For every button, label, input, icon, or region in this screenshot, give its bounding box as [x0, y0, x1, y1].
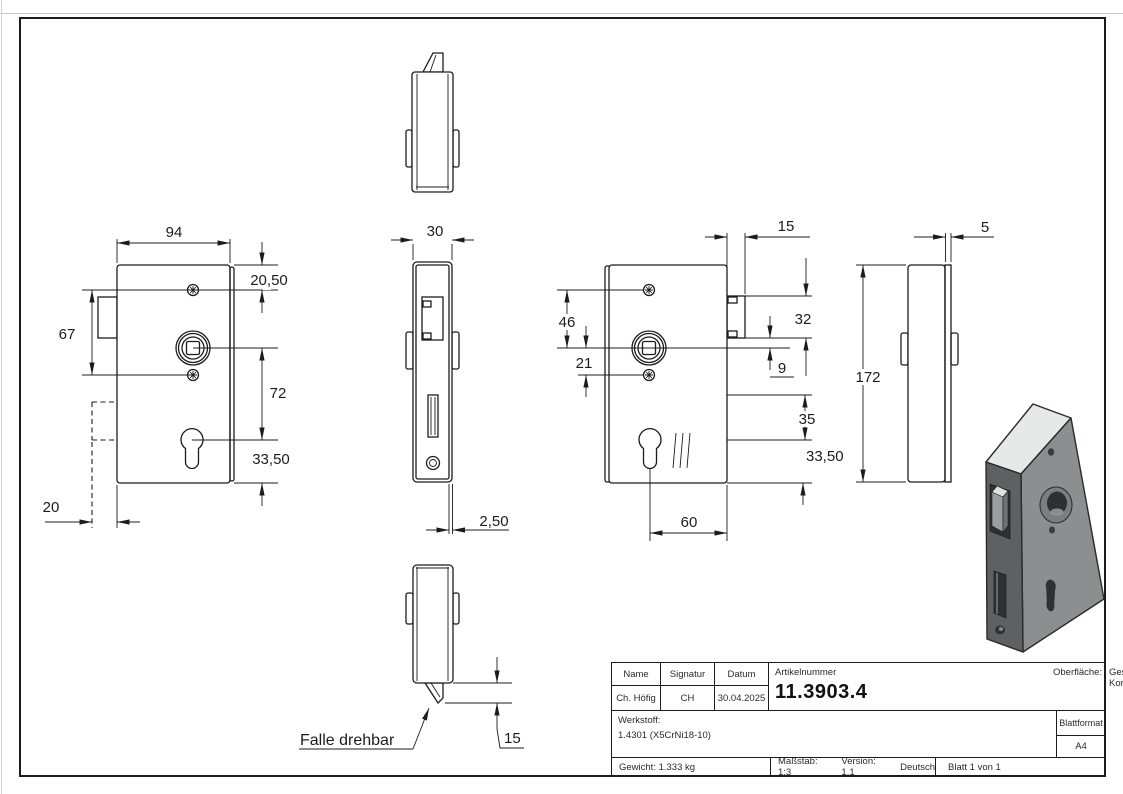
- dim-30-group: 30: [391, 223, 474, 260]
- dim-height-35: 35: [799, 411, 816, 428]
- dim-height-32: 32: [795, 311, 812, 328]
- tb-label-blattformat: Blattformat: [1057, 711, 1105, 736]
- tb-label-werkstoff: Werkstoff:: [618, 715, 660, 726]
- tb-label-artikelnummer: Artikelnummer: [775, 667, 836, 678]
- tb-value-blattformat: A4: [1057, 736, 1105, 758]
- dim-thickness-5: 5: [981, 219, 989, 236]
- dim-latch-15-top: 15: [778, 218, 795, 235]
- dim-thickness-2-50: 2,50: [479, 513, 508, 530]
- tb-gewicht: Gewicht: 1.333 kg: [612, 758, 771, 776]
- tb-artikel-cell: Artikelnummer 11.3903.4 Oberfläche: Gesc…: [769, 663, 1105, 711]
- dim-height-46: 46: [559, 314, 576, 331]
- dim-width-94: 94: [166, 224, 183, 241]
- note-falle-drehbar: Falle drehbar: [300, 732, 395, 749]
- profile-view-bottom: Falle drehbar 15: [299, 565, 524, 749]
- tb-label-oberflaeche: Oberfläche:: [1053, 667, 1102, 678]
- dim-height-21: 21: [576, 355, 593, 372]
- tb-header-datum: Datum: [715, 663, 769, 686]
- screw-bottom-right: [644, 370, 655, 381]
- front-view-right: 15 46 21 32 9 35: [557, 218, 844, 541]
- dim-height-172: 172: [855, 369, 880, 386]
- tb-value-artikelnummer: 11.3903.4: [775, 681, 867, 704]
- tb-werkstoff-cell: Werkstoff: 1.4301 (X5CrNi18-10): [612, 711, 1057, 758]
- 3d-screw-hole-bottom: [1049, 527, 1055, 534]
- front-view-left: 94 20,50 67 72 33,50 20: [43, 224, 290, 528]
- dim-width-60: 60: [681, 514, 698, 531]
- dim-width-20: 20: [43, 499, 60, 516]
- tb-value-name: Ch. Höfig: [612, 686, 661, 711]
- tb-blatt: Blatt 1 von 1: [936, 758, 1105, 776]
- lock-case-left-view: [117, 265, 230, 483]
- tb-value-werkstoff: 1.4301 (X5CrNi18-10): [618, 730, 711, 741]
- lock-case-right-view: [609, 265, 727, 483]
- tb-value-signatur: CH: [661, 686, 715, 711]
- 3d-bolt-slot: [994, 571, 1006, 618]
- latch-tip-bottom: [425, 683, 443, 703]
- title-block: Name Signatur Datum Ch. Höfig CH 30.04.2…: [611, 662, 1105, 776]
- tb-value-oberflaeche: Geschliffen Korn 240: [1109, 667, 1123, 689]
- latch-right-view: [727, 296, 745, 338]
- 3d-screw-hole-top: [1048, 448, 1054, 456]
- bolt-hidden-lines: [92, 402, 117, 440]
- dim-width-30: 30: [427, 223, 444, 240]
- faceplate-view: 2,50: [406, 262, 509, 534]
- tb-header-name: Name: [612, 663, 661, 686]
- dim-height-33-50-right: 33,50: [806, 448, 844, 465]
- profile-view-top: [406, 53, 459, 192]
- tb-version: Version: 1.1: [841, 756, 886, 778]
- latch-left-view: [98, 297, 117, 338]
- tb-value-datum: 30.04.2025: [715, 686, 769, 711]
- tb-massstab-cell: Maßstab: 1:3 Version: 1.1 Deutsch: [771, 758, 936, 776]
- isometric-3d-view: [986, 404, 1104, 652]
- dim-height-33-50-left: 33,50: [252, 451, 290, 468]
- dim-height-72: 72: [270, 385, 287, 402]
- dim-latch-15-bottom: 15: [504, 730, 521, 747]
- dim-height-20-50: 20,50: [250, 272, 288, 289]
- tb-sprache: Deutsch: [900, 762, 935, 773]
- tb-massstab: Maßstab: 1:3: [778, 756, 827, 778]
- side-view-right: 172 5: [855, 219, 994, 482]
- screw-top-right: [644, 285, 655, 296]
- dim-height-67: 67: [59, 326, 76, 343]
- dim-height-9: 9: [778, 360, 786, 377]
- drawing-page: 94 20,50 67 72 33,50 20: [0, 0, 1123, 794]
- tb-header-signatur: Signatur: [661, 663, 715, 686]
